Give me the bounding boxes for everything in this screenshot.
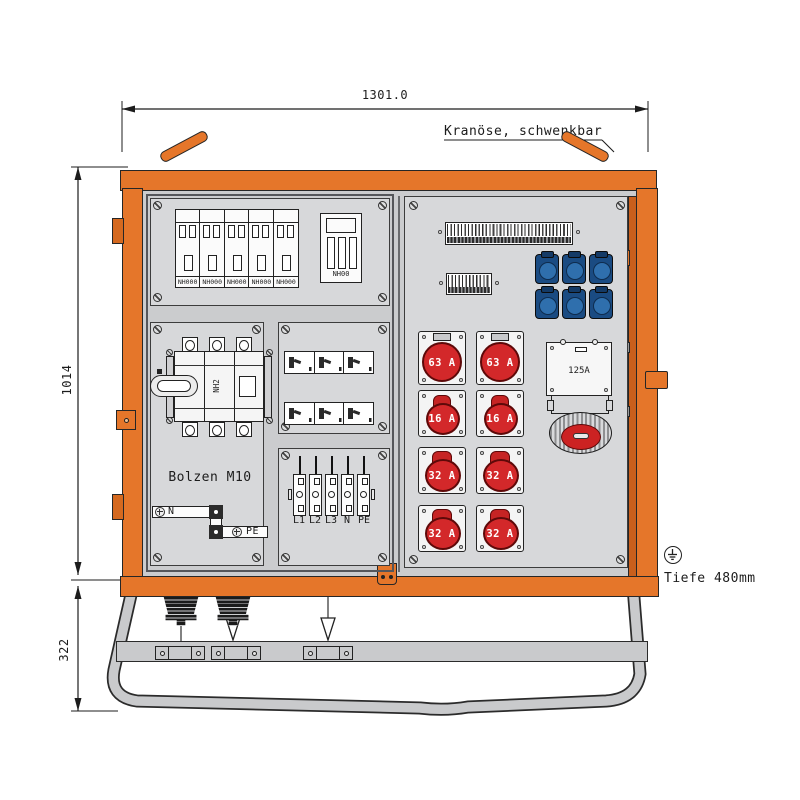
mcb-module[interactable] — [344, 352, 373, 373]
switch-rail-right — [264, 356, 272, 418]
nh000-fuse-strip[interactable]: NH000 — [224, 209, 250, 288]
terminal-block — [357, 474, 370, 516]
screw-dot — [576, 230, 580, 234]
busbar-node — [209, 525, 223, 539]
cee-socket-32a[interactable]: 32 A — [418, 447, 466, 494]
mcb-row-lower[interactable] — [284, 402, 374, 425]
screw — [266, 417, 273, 424]
terminal-label: N — [339, 515, 355, 526]
terminal-block — [325, 474, 338, 516]
cee-socket-125a-box[interactable]: 125A — [546, 342, 612, 396]
socket-amp-label: 63 A — [419, 357, 465, 369]
switch-terminal — [209, 422, 225, 437]
schuko-socket-blue[interactable] — [535, 254, 559, 284]
nh000-fuse-strip[interactable]: NH000 — [273, 209, 299, 288]
screw — [378, 325, 387, 334]
schuko-socket-blue[interactable] — [562, 289, 586, 319]
screw — [281, 553, 290, 562]
fuse-label: NH000 — [176, 276, 200, 286]
switch-terminal — [236, 337, 252, 352]
screw — [378, 553, 387, 562]
distribution-cabinet-drawing: 1301.0 1014 322 Kranöse, schwenkbar Tief… — [0, 0, 800, 800]
terminal-label: L2 — [307, 515, 323, 526]
din-terminal-strip-short — [446, 273, 492, 295]
din-terminal-strip-long — [445, 222, 573, 245]
screw — [153, 293, 162, 302]
cee-socket-16a[interactable]: 16 A — [418, 390, 466, 437]
schuko-socket-blue[interactable] — [589, 254, 613, 284]
screw — [153, 201, 162, 210]
nh000-fuse-row: NH000 NH000 NH000 NH000 NH000 — [176, 209, 299, 288]
hinge-pin — [124, 418, 129, 423]
socket-amp-label: 32 A — [477, 528, 523, 540]
terminal-flange — [288, 489, 292, 500]
mounting-eyelet — [592, 339, 598, 345]
cee-socket-16a[interactable]: 16 A — [476, 390, 524, 437]
terminal-block — [341, 474, 354, 516]
screw — [378, 451, 387, 460]
cee-socket-32a[interactable]: 32 A — [476, 447, 524, 494]
switch-nub — [157, 369, 162, 374]
socket-amp-label: 125A — [547, 366, 611, 376]
screw — [252, 553, 261, 562]
cee-socket-32a[interactable]: 32 A — [418, 505, 466, 552]
socket-amp-label: 32 A — [477, 470, 523, 482]
hinge-tab-top — [112, 218, 124, 244]
terminal-flange — [371, 489, 375, 500]
switch-terminal — [209, 337, 225, 352]
mcb-module[interactable] — [315, 403, 345, 424]
cable-clamp-plate — [155, 646, 205, 660]
busbar-n-label: N — [168, 506, 175, 517]
terminal-block — [293, 474, 306, 516]
screw — [378, 293, 387, 302]
dim-stand-label: 322 — [57, 626, 71, 674]
screw — [153, 325, 162, 334]
door-handle[interactable] — [645, 371, 668, 389]
mcb-module[interactable] — [285, 352, 315, 373]
cee-socket-32a[interactable]: 32 A — [476, 505, 524, 552]
fuse-label: NH000 — [225, 276, 249, 286]
terminal-label: L3 — [323, 515, 339, 526]
pe-terminal-screw — [232, 527, 242, 537]
terminal-label: PE — [356, 515, 372, 526]
busbar-node — [209, 505, 223, 519]
socket-amp-label: 32 A — [419, 470, 465, 482]
schuko-socket-blue[interactable] — [589, 289, 613, 319]
nh000-fuse-strip[interactable]: NH000 — [175, 209, 201, 288]
cabinet-top-bar — [120, 170, 657, 191]
screw — [166, 349, 173, 356]
nh000-fuse-strip[interactable]: NH000 — [199, 209, 225, 288]
mounting-eyelet — [560, 339, 566, 345]
screw — [409, 201, 418, 210]
switch-terminal — [182, 422, 198, 437]
terminal-block — [309, 474, 322, 516]
bolt-label: Bolzen M10 — [158, 470, 262, 485]
screw — [281, 325, 290, 334]
cable-clamp-plate — [303, 646, 353, 660]
mcb-module[interactable] — [315, 352, 345, 373]
socket-amp-label: 16 A — [477, 413, 523, 425]
cee-socket-63a[interactable]: 63 A — [476, 331, 524, 385]
earth-symbol — [664, 546, 682, 564]
panel-seam — [398, 196, 400, 572]
fuse-label: NH000 — [200, 276, 224, 286]
switch-module-window — [239, 376, 256, 397]
screw — [378, 201, 387, 210]
terminal-label: L1 — [291, 515, 307, 526]
screw-dot — [495, 281, 499, 285]
screw — [409, 555, 418, 564]
nh000-fuse-strip[interactable]: NH000 — [248, 209, 274, 288]
dim-width-label: 1301.0 — [325, 88, 445, 102]
switch-terminal — [182, 337, 198, 352]
cabinet-left-frame — [122, 188, 143, 578]
nh00-fuse-switch[interactable]: NH00 — [320, 213, 362, 283]
switch-terminal — [236, 422, 252, 437]
dim-height-label: 1014 — [60, 356, 74, 404]
depth-label: Tiefe 480mm — [664, 571, 756, 586]
nh00-label: NH00 — [321, 270, 361, 278]
mcb-module[interactable] — [344, 403, 373, 424]
screw-dot — [439, 281, 443, 285]
screw — [378, 422, 387, 431]
screw — [616, 201, 625, 210]
fuse-label: NH000 — [274, 276, 298, 286]
main-switch-label: NH2 — [212, 377, 226, 395]
mcb-module[interactable] — [285, 403, 315, 424]
socket-amp-label: 32 A — [419, 528, 465, 540]
cable-clamp-plate — [211, 646, 261, 660]
cee-socket-125a-slot — [573, 433, 589, 439]
fuse-label: NH000 — [249, 276, 273, 286]
n-terminal-screw — [155, 507, 165, 517]
mcb-row-upper[interactable] — [284, 351, 374, 374]
main-switch-handle-grip — [157, 380, 191, 392]
screw-dot — [438, 230, 442, 234]
screw — [266, 349, 273, 356]
schuko-socket-blue[interactable] — [535, 289, 559, 319]
screw — [281, 451, 290, 460]
socket-amp-label: 63 A — [477, 357, 523, 369]
schuko-socket-blue[interactable] — [562, 254, 586, 284]
hinge-tab-bottom — [112, 494, 124, 520]
screw — [252, 325, 261, 334]
screw — [616, 555, 625, 564]
screw — [166, 417, 173, 424]
cee-socket-63a[interactable]: 63 A — [418, 331, 466, 385]
screw — [153, 553, 162, 562]
busbar-pe-label: PE — [246, 526, 259, 537]
socket-amp-label: 16 A — [419, 413, 465, 425]
